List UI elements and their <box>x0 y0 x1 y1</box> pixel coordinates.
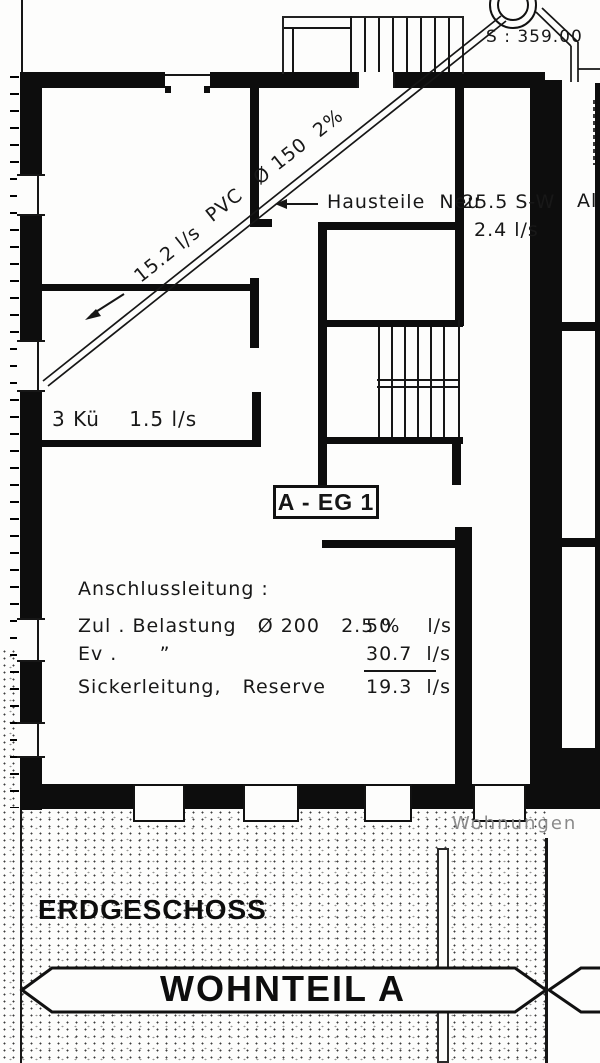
window-line <box>17 340 45 342</box>
opening-head-line <box>165 74 210 76</box>
stair-stub-right <box>452 437 461 485</box>
stair-landing-line <box>377 386 459 388</box>
door-jamb-line <box>357 72 359 88</box>
room-tag-box: A - EG 1 <box>273 485 379 519</box>
exterior-wall-top <box>210 72 357 88</box>
window-line <box>17 618 45 620</box>
room-wall <box>42 440 252 447</box>
sw-area-label: 25.5 S-W <box>462 193 555 213</box>
section-line <box>545 838 548 1063</box>
kitchen-flow-label: 3 Kü 1.5 l/s <box>52 409 197 430</box>
wohnungen-label: Wohnungen <box>452 815 577 834</box>
stair-side-line <box>458 320 460 442</box>
window-line <box>17 390 45 392</box>
window-line <box>37 174 39 216</box>
room-wall-return <box>252 392 261 447</box>
terrace-step <box>364 18 366 72</box>
window-line <box>17 756 45 758</box>
window-sill <box>364 784 412 822</box>
interior-wall-foot <box>250 219 272 227</box>
interior-wall <box>250 86 259 226</box>
pipe-flow-label: 15.2 l/s <box>131 223 204 287</box>
wall-edge-line <box>21 0 23 72</box>
interior-wall <box>318 222 327 444</box>
banner-title: WOHNTEIL A <box>50 967 516 1011</box>
stair-tread <box>404 327 406 437</box>
window-opening <box>17 722 45 758</box>
floor-title: ERDGESCHOSS <box>38 895 267 924</box>
terrace-step <box>406 18 408 72</box>
stair-wall-bottom <box>327 437 463 444</box>
stair-tread <box>391 327 393 437</box>
pipe-diameter-label: Ø 150 <box>250 135 311 189</box>
room-wall-return <box>250 278 259 348</box>
window-line <box>37 618 39 662</box>
stair-tread <box>417 327 419 437</box>
interior-wall <box>455 527 472 784</box>
right-room-divider <box>562 538 595 547</box>
table-row-label: Zul . Belastung Ø 200 2.5 % <box>78 617 400 637</box>
window-line <box>37 722 39 758</box>
stair-landing-line <box>377 379 459 381</box>
pipe-material-label: PVC <box>203 186 247 227</box>
window-line <box>17 174 45 176</box>
exterior-wall-right-inner <box>530 80 562 809</box>
terrace-step <box>350 16 352 72</box>
window-line <box>17 660 45 662</box>
exterior-wall-top <box>395 72 545 88</box>
window-opening <box>17 174 45 216</box>
window-line <box>37 340 39 392</box>
stair-wall-top <box>327 320 463 327</box>
table-row-value: 30.7 l/s <box>366 645 451 665</box>
terrace-step <box>448 18 450 72</box>
window-opening <box>17 340 45 392</box>
hausteile-neu-label: Hausteile Neu <box>327 193 480 213</box>
opening-jamb <box>165 86 171 93</box>
exterior-wall-top <box>20 72 165 88</box>
floor-plan-sheet: 15.2 l/s PVC Ø 150 2% S : 359.00 Haustei… <box>0 0 600 1063</box>
terrace-step <box>420 18 422 72</box>
window-sill <box>133 784 185 822</box>
stair-tread <box>430 327 432 437</box>
window-line <box>17 214 45 216</box>
connection-table-heading: Anschlussleitung : <box>78 580 269 600</box>
shaft-elevation-label: S : 359.00 <box>486 29 583 47</box>
room-tag-label: A - EG 1 <box>278 489 375 515</box>
window-opening <box>17 618 45 662</box>
right-room-divider <box>562 322 595 331</box>
stair-stub-left <box>318 437 327 485</box>
interior-wall <box>322 540 455 548</box>
window-line <box>17 722 45 724</box>
table-row-label: Sickerleitung, Reserve <box>78 678 326 698</box>
stair-tread <box>378 327 380 437</box>
table-sum-line <box>364 670 436 672</box>
table-row-value: 50 l/s <box>366 617 452 637</box>
sw-flow-label: 2.4 l/s <box>474 221 539 241</box>
terrace-step <box>378 18 380 72</box>
terrace-step <box>392 18 394 72</box>
terrace-step <box>434 18 436 72</box>
clipped-right-label: Al <box>577 192 597 212</box>
table-row-value: 19.3 l/s <box>366 678 451 698</box>
terrace-inner-line <box>292 27 294 72</box>
interior-wall <box>318 222 463 230</box>
pipe-slope-label: 2% <box>310 106 348 142</box>
terrace-outline <box>282 16 464 74</box>
stair-tread <box>443 327 445 437</box>
table-row-label: Ev . ” <box>78 645 170 665</box>
window-sill <box>243 784 299 822</box>
